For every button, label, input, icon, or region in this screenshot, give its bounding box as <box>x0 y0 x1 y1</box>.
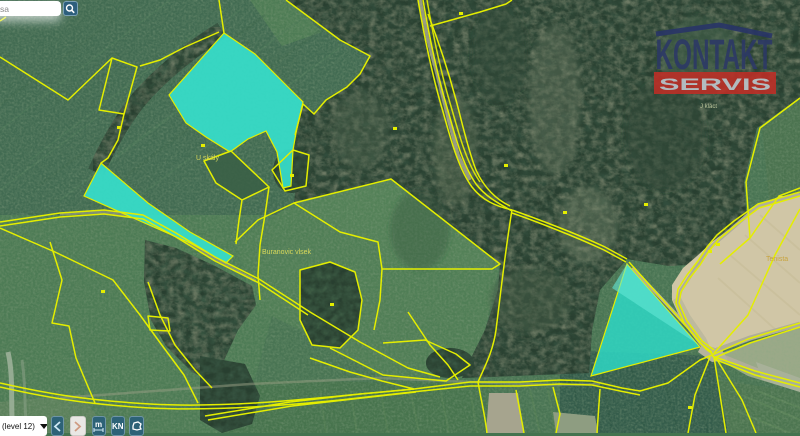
svg-text:Tenista: Tenista <box>766 256 788 263</box>
svg-text:J kláct: J kláct <box>700 104 717 110</box>
svg-text:Buranovic vlsek: Buranovic vlsek <box>262 249 312 256</box>
svg-text:U skály: U skály <box>196 155 219 162</box>
svg-text:KONTAKT: KONTAKT <box>656 31 773 79</box>
svg-text:SERVIS: SERVIS <box>659 75 771 94</box>
